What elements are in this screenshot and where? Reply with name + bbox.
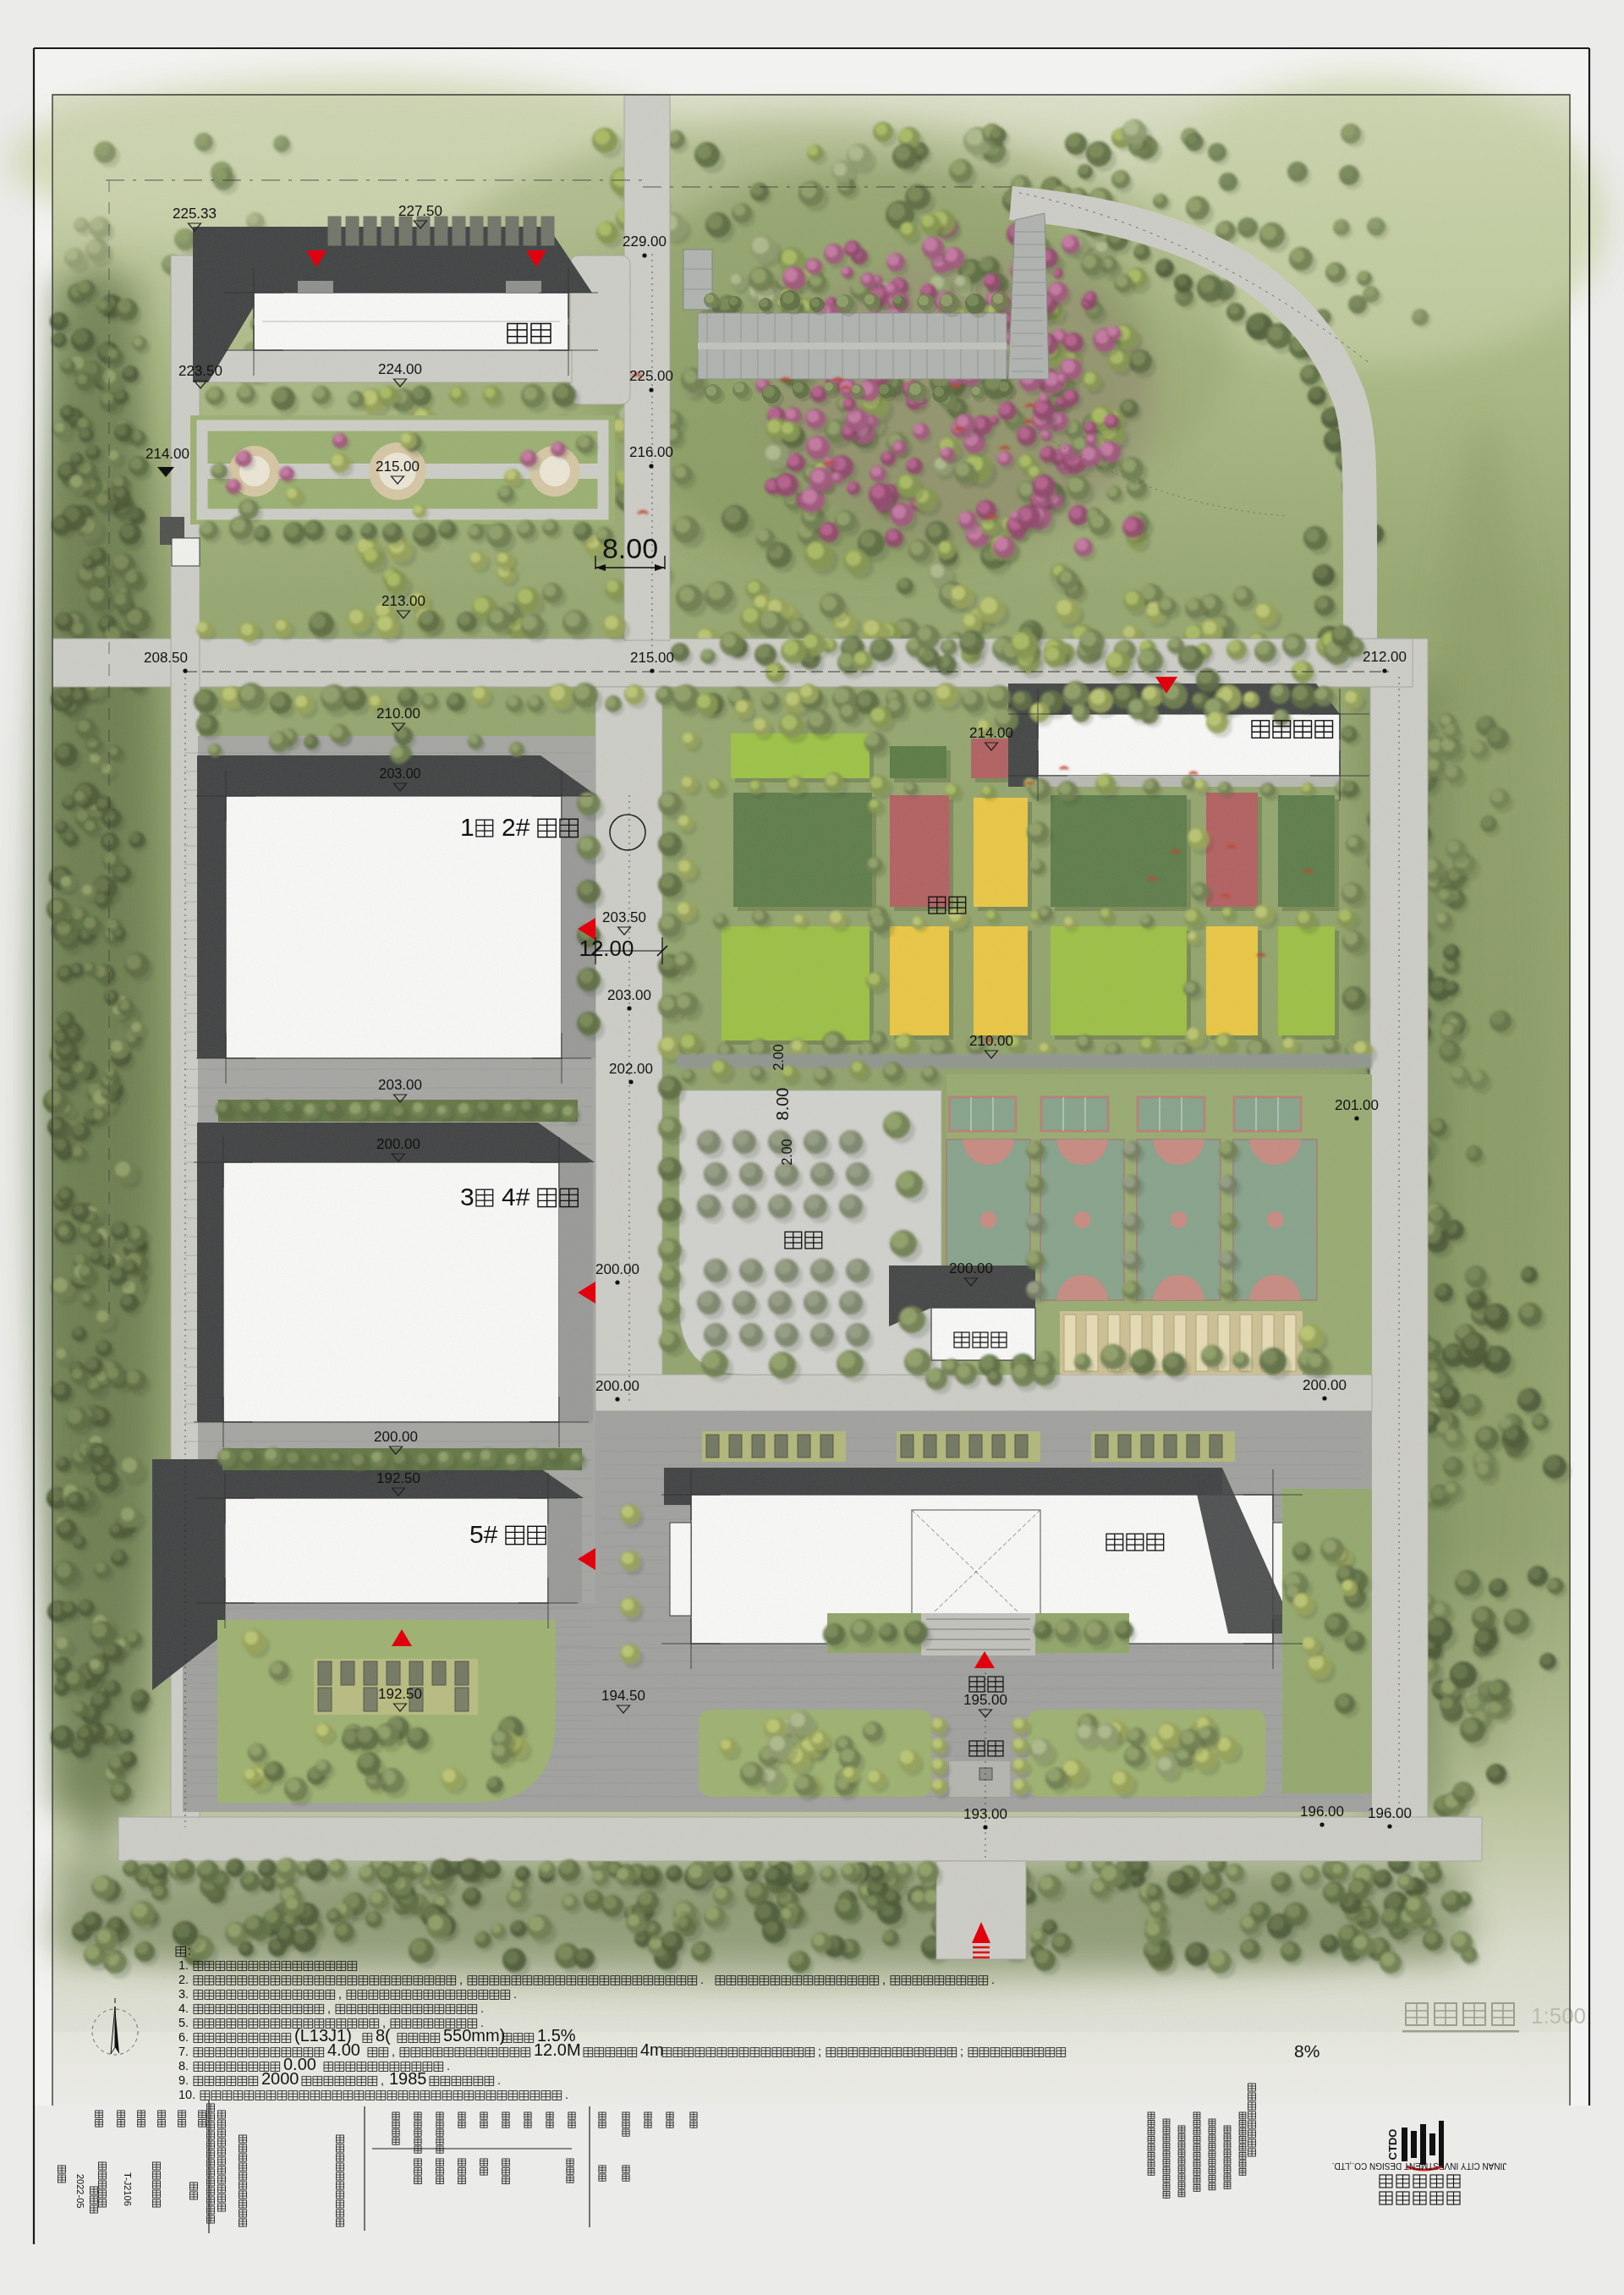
svg-text:1.: 1.	[178, 1958, 189, 1972]
svg-text:T-J2106: T-J2106	[123, 2172, 133, 2206]
svg-text:202.00: 202.00	[609, 1061, 653, 1077]
svg-text:212.00: 212.00	[1363, 649, 1407, 665]
svg-text:,: ,	[338, 1987, 342, 2001]
svg-text:1985: 1985	[389, 2069, 427, 2088]
svg-text:12.00: 12.00	[579, 936, 634, 961]
svg-text:8.00: 8.00	[602, 532, 658, 564]
svg-text:2.00: 2.00	[780, 1139, 794, 1165]
svg-text:223.50: 223.50	[178, 363, 222, 379]
svg-text:8%: 8%	[1294, 2041, 1319, 2061]
svg-text:200.00: 200.00	[595, 1378, 639, 1394]
svg-text:210.00: 210.00	[376, 706, 420, 722]
svg-text:.: .	[447, 2059, 450, 2073]
svg-text:192.50: 192.50	[378, 1686, 422, 1702]
svg-text:.: .	[480, 2001, 484, 2015]
svg-text:203.00: 203.00	[380, 766, 421, 781]
svg-text:2000: 2000	[261, 2069, 299, 2088]
svg-text:JINAN CITY INVESTMENT DESIGN C: JINAN CITY INVESTMENT DESIGN CO.,LTD.	[1332, 2161, 1507, 2171]
svg-text:8.00: 8.00	[773, 1088, 792, 1121]
svg-text::: :	[188, 1944, 191, 1957]
svg-text:3: 3	[460, 1183, 475, 1211]
svg-text:208.50: 208.50	[144, 650, 188, 666]
svg-text:215.00: 215.00	[376, 458, 420, 475]
svg-text:196.00: 196.00	[1300, 1804, 1344, 1820]
svg-text:CTDO: CTDO	[1386, 2129, 1399, 2160]
svg-text:5#: 5#	[469, 1520, 498, 1548]
svg-text:216.00: 216.00	[629, 444, 673, 460]
svg-text:5.: 5.	[178, 2016, 189, 2029]
svg-text:.: .	[700, 1973, 704, 1986]
svg-text:200.00: 200.00	[595, 1261, 639, 1277]
svg-text:203.00: 203.00	[607, 987, 651, 1003]
svg-text:200.00: 200.00	[376, 1136, 420, 1152]
svg-text:210.00: 210.00	[969, 1033, 1013, 1049]
svg-text:200.00: 200.00	[374, 1429, 418, 1445]
svg-text:214.00: 214.00	[145, 446, 189, 462]
svg-text:;: ;	[818, 2045, 821, 2058]
svg-text:550mm): 550mm)	[443, 2026, 505, 2045]
svg-text:203.00: 203.00	[378, 1077, 422, 1093]
svg-text:.: .	[991, 1973, 995, 1986]
svg-text:1:500: 1:500	[1531, 2003, 1586, 2029]
svg-text:9.: 9.	[178, 2073, 189, 2087]
svg-text:1: 1	[460, 813, 475, 841]
svg-text:.: .	[497, 2073, 501, 2087]
svg-text:.: .	[513, 1987, 517, 2001]
svg-text:225.00: 225.00	[629, 368, 673, 384]
svg-text:8.: 8.	[178, 2059, 189, 2073]
svg-text:2#: 2#	[502, 813, 530, 841]
svg-text:4#: 4#	[502, 1183, 530, 1211]
svg-text:200.00: 200.00	[949, 1260, 993, 1277]
svg-text:214.00: 214.00	[969, 725, 1013, 741]
svg-text:10.: 10.	[178, 2088, 195, 2101]
svg-text:195.00: 195.00	[963, 1692, 1007, 1708]
svg-text:196.00: 196.00	[1368, 1805, 1412, 1821]
svg-text:225.33: 225.33	[173, 206, 217, 222]
svg-text:,: ,	[381, 2073, 384, 2087]
svg-text:4.00: 4.00	[327, 2040, 360, 2059]
svg-text:193.00: 193.00	[963, 1806, 1007, 1822]
svg-text:229.00: 229.00	[623, 233, 667, 250]
svg-text:201.00: 201.00	[1335, 1097, 1379, 1113]
svg-text:192.50: 192.50	[376, 1470, 420, 1486]
svg-text:,: ,	[882, 1973, 886, 1986]
svg-text:4m: 4m	[640, 2040, 664, 2059]
svg-text:,: ,	[459, 1973, 463, 1986]
svg-text:6.: 6.	[178, 2030, 189, 2044]
svg-text:213.00: 213.00	[381, 593, 425, 609]
svg-text:;: ;	[960, 2045, 963, 2058]
svg-text:,: ,	[327, 2001, 331, 2015]
svg-text:7.: 7.	[178, 2045, 189, 2058]
svg-text:,: ,	[392, 2045, 395, 2058]
svg-text:2.: 2.	[178, 1973, 189, 1986]
svg-text:200.00: 200.00	[1303, 1377, 1347, 1393]
svg-text:4.: 4.	[178, 2001, 189, 2015]
svg-text:224.00: 224.00	[378, 361, 422, 377]
svg-text:8(: 8(	[376, 2026, 391, 2045]
svg-text:194.50: 194.50	[601, 1688, 645, 1704]
svg-text:203.50: 203.50	[602, 909, 646, 925]
svg-text:2.00: 2.00	[771, 1044, 786, 1070]
svg-text:2022-05: 2022-05	[75, 2174, 85, 2208]
svg-text:12.0M: 12.0M	[534, 2040, 581, 2059]
svg-text:3.: 3.	[178, 1987, 189, 2001]
svg-text:.: .	[565, 2088, 568, 2101]
svg-text:215.00: 215.00	[630, 650, 674, 666]
svg-text:227.50: 227.50	[398, 203, 442, 219]
